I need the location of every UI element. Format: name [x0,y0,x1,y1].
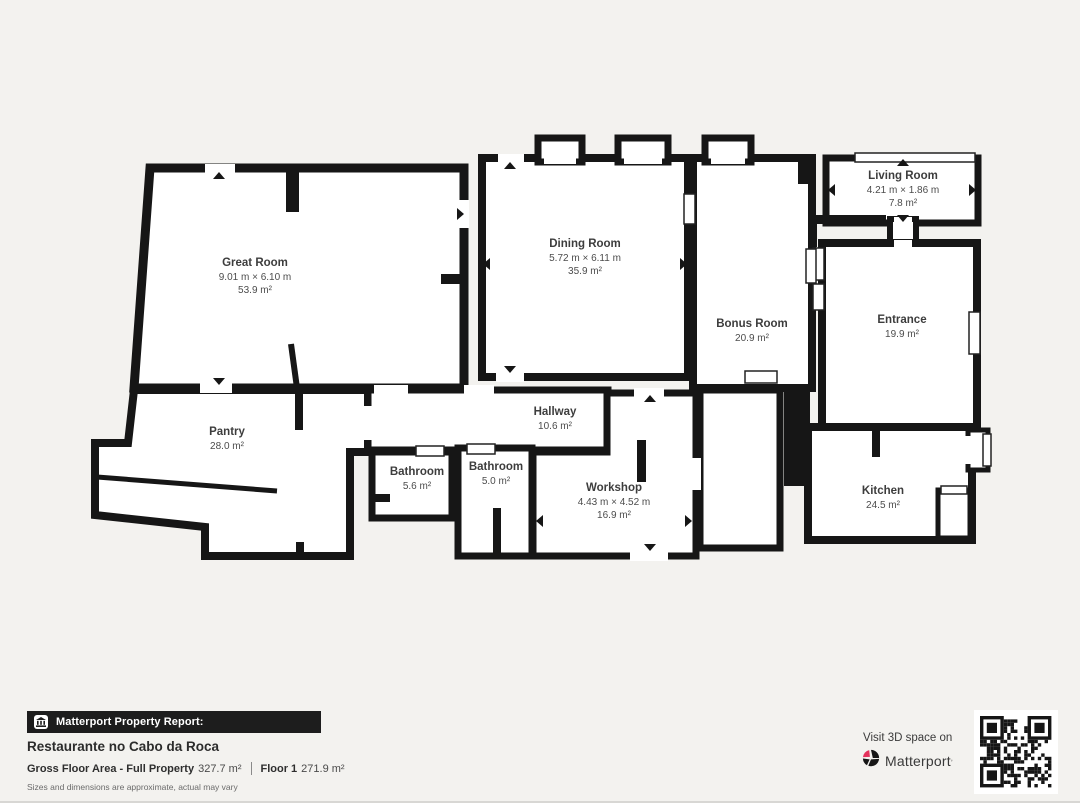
property-report-page: Great Room 9.01 m × 6.10 m 53.9 m² Dinin… [0,0,1080,803]
room-side [700,390,780,548]
disclaimer-text: Sizes and dimensions are approximate, ac… [27,782,238,792]
building-icon [34,715,48,729]
gfa-value: 327.7 m² [198,763,241,775]
matterport-logo-icon [862,749,880,772]
stats-divider [251,762,252,775]
room-bonus-room [693,158,812,388]
visit-3d-space-text: Visit 3D space on [863,732,952,744]
room-entrance [822,243,977,427]
matterport-wordmark: Matterport, [885,753,953,769]
floorplan-drawing [0,0,1080,803]
matterport-brand: Matterport, [862,749,953,772]
floor-label: Floor 1 [261,763,298,775]
qr-code [974,710,1058,794]
room-living-room [826,158,978,223]
report-banner: Matterport Property Report: [27,711,321,733]
gfa-label: Gross Floor Area - Full Property [27,763,194,775]
room-pantry [95,390,368,556]
room-bathroom-1 [372,452,452,518]
property-title: Restaurante no Cabo da Roca [27,739,219,754]
floor-value: 271.9 m² [301,763,344,775]
floor-area-stats: Gross Floor Area - Full Property 327.7 m… [27,762,345,775]
rooms-layer [95,138,988,556]
room-dining-room [482,158,688,377]
kitchen-closet [938,490,970,538]
report-banner-label: Matterport Property Report: [56,716,204,728]
room-hallway [368,390,608,450]
